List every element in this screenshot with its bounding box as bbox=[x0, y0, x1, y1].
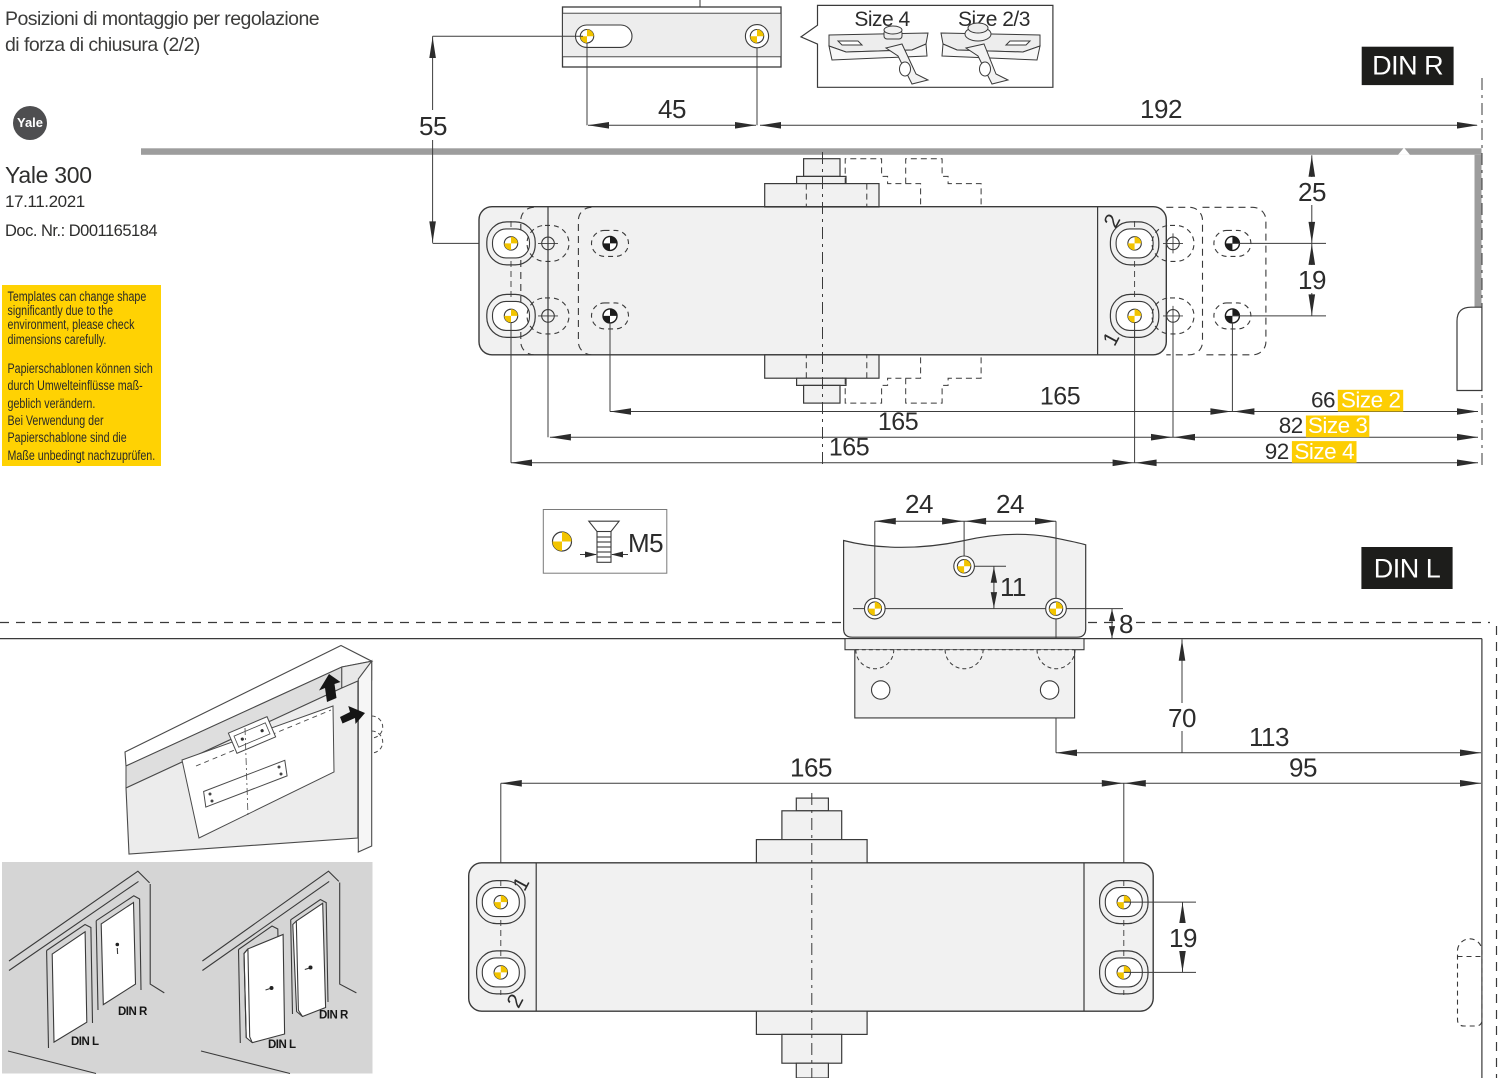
svg-text:165: 165 bbox=[829, 434, 869, 462]
svg-text:DIN L: DIN L bbox=[1374, 554, 1441, 584]
svg-text:DIN R: DIN R bbox=[1372, 51, 1443, 81]
svg-text:DIN L: DIN L bbox=[268, 1039, 296, 1051]
svg-text:19: 19 bbox=[1298, 265, 1326, 295]
svg-text:Size 4: Size 4 bbox=[854, 8, 910, 31]
svg-text:DIN R: DIN R bbox=[118, 1006, 148, 1018]
svg-text:55: 55 bbox=[419, 111, 447, 141]
svg-text:70: 70 bbox=[1168, 703, 1196, 733]
svg-text:45: 45 bbox=[658, 94, 686, 124]
svg-text:19: 19 bbox=[1169, 923, 1197, 953]
svg-text:165: 165 bbox=[790, 753, 832, 783]
svg-text:M5: M5 bbox=[628, 528, 663, 558]
svg-text:165: 165 bbox=[1040, 383, 1080, 411]
svg-text:192: 192 bbox=[1140, 94, 1182, 124]
svg-text:DIN R: DIN R bbox=[319, 1010, 349, 1022]
svg-text:Size 3: Size 3 bbox=[1308, 413, 1368, 438]
svg-text:11: 11 bbox=[1000, 572, 1026, 602]
svg-text:113: 113 bbox=[1249, 722, 1289, 752]
svg-text:165: 165 bbox=[878, 408, 918, 436]
svg-text:25: 25 bbox=[1298, 177, 1326, 207]
svg-text:Size 2: Size 2 bbox=[1341, 388, 1401, 413]
svg-text:24: 24 bbox=[996, 489, 1024, 519]
svg-text:95: 95 bbox=[1289, 753, 1317, 783]
svg-text:24: 24 bbox=[905, 489, 933, 519]
svg-text:DIN L: DIN L bbox=[71, 1036, 99, 1048]
svg-text:82: 82 bbox=[1279, 413, 1303, 438]
svg-text:Size 4: Size 4 bbox=[1294, 439, 1354, 464]
svg-text:8: 8 bbox=[1119, 609, 1133, 639]
svg-text:92: 92 bbox=[1265, 439, 1289, 464]
svg-text:66: 66 bbox=[1311, 388, 1335, 413]
